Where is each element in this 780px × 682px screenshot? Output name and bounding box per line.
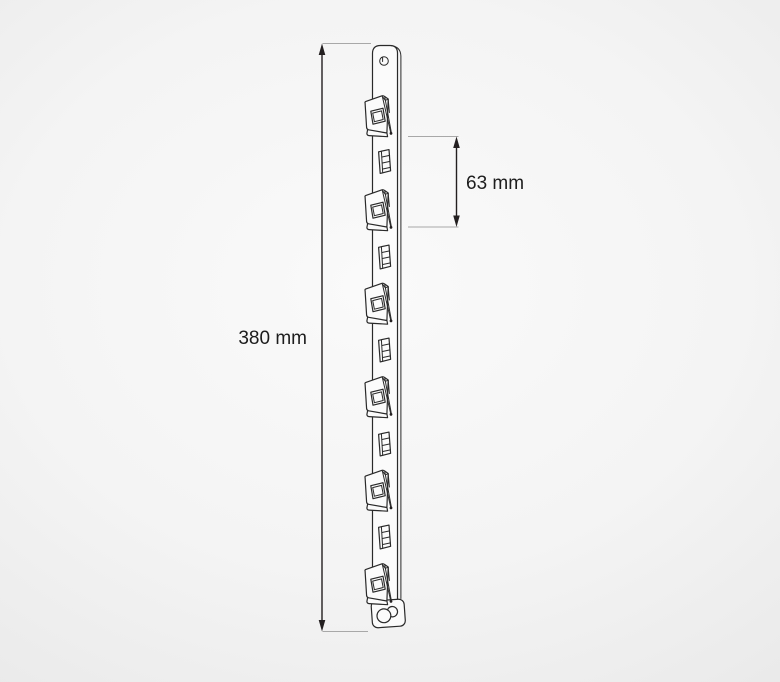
slot <box>379 525 391 549</box>
clip-strip <box>365 46 406 629</box>
dimension-label-clip-spacing: 63 mm <box>466 173 524 194</box>
arrow-up-icon <box>453 137 460 149</box>
slot <box>379 432 391 456</box>
arrow-down-icon <box>453 216 460 228</box>
arrow-up-icon <box>319 44 326 56</box>
dimension-clip-spacing: 63 mm <box>408 137 524 228</box>
diagram-canvas: 380 mm 63 mm <box>0 0 780 682</box>
dimension-label-overall-height: 380 mm <box>238 328 307 349</box>
product-diagram: 380 mm 63 mm <box>0 0 780 682</box>
bottom-stud <box>377 608 392 623</box>
arrow-down-icon <box>319 620 326 632</box>
dimension-overall-height: 380 mm <box>238 44 371 632</box>
slot <box>379 245 391 269</box>
slot <box>379 338 391 362</box>
slot <box>379 150 391 174</box>
